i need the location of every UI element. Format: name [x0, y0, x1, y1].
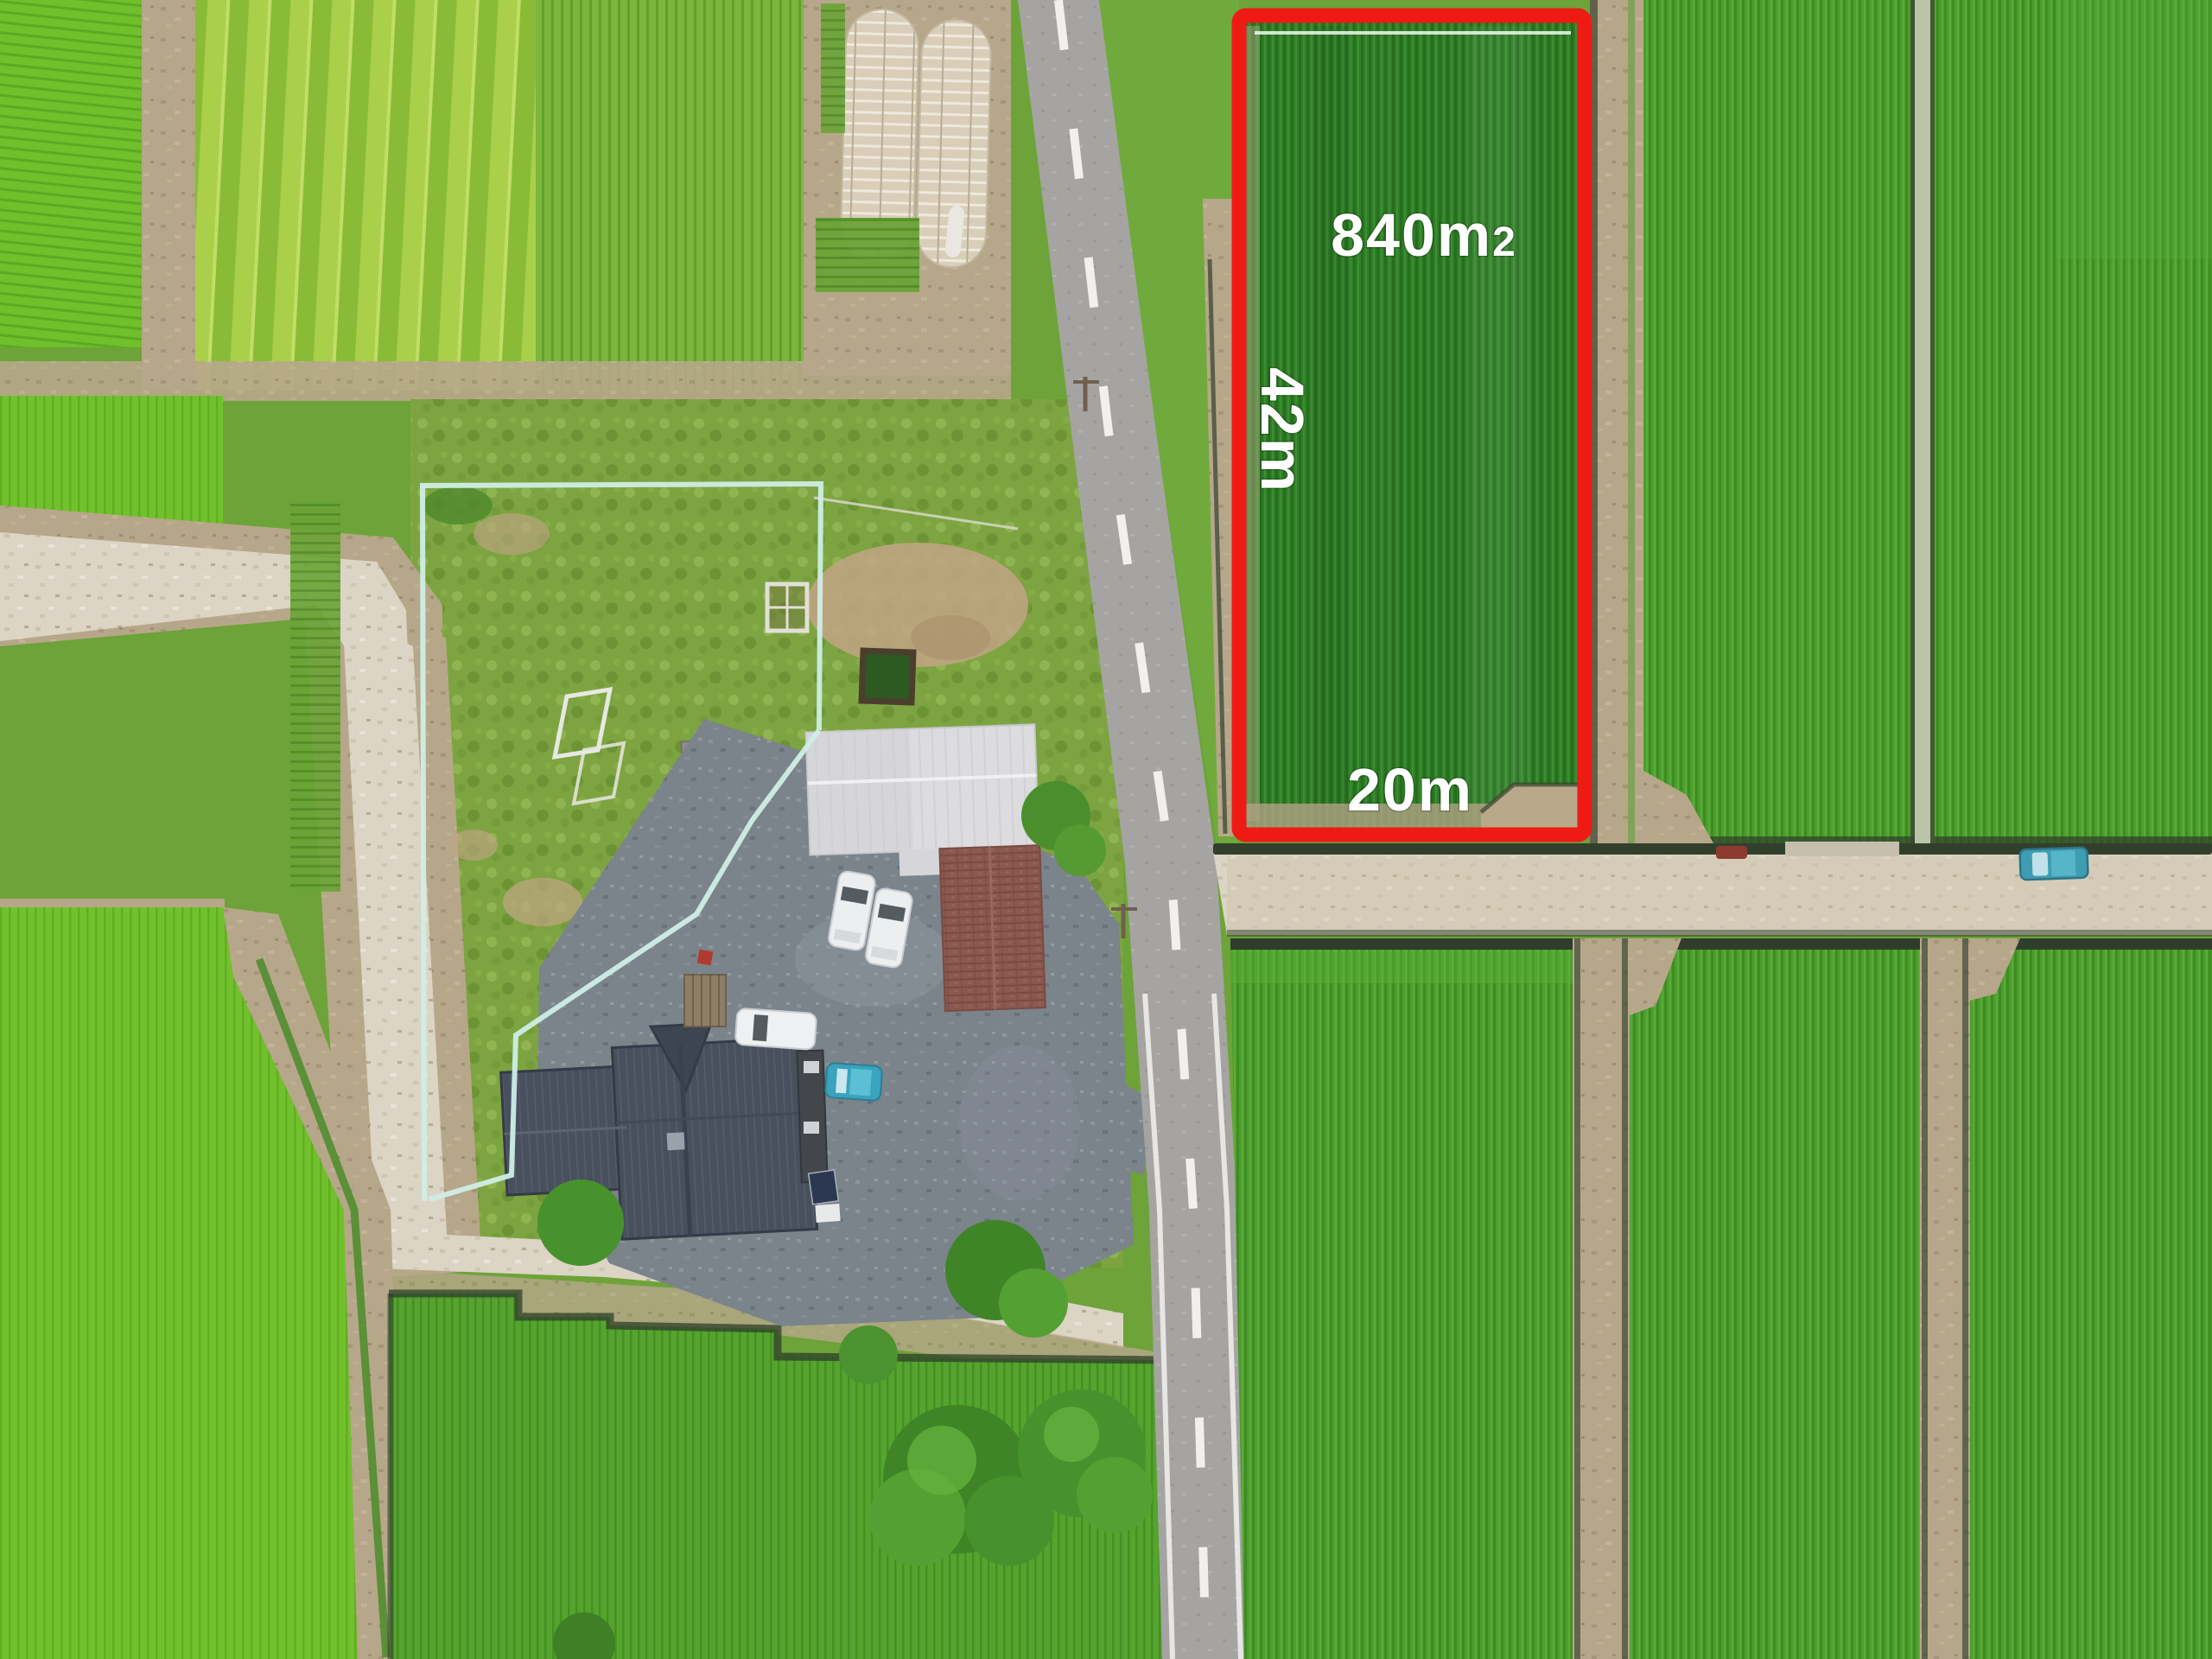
- concrete-channel-cover: [1785, 842, 1899, 856]
- wooden-planter: [767, 584, 807, 631]
- plot-light-band: [1469, 26, 1529, 825]
- paddy-field-topleft: [0, 0, 145, 347]
- striped-vegetable-field: [195, 0, 537, 391]
- field-se1-top-edge: [1230, 938, 1573, 950]
- tree-highlight: [907, 1426, 976, 1495]
- bush: [1054, 824, 1106, 876]
- red-object: [697, 950, 714, 966]
- dirt-patch: [503, 878, 582, 926]
- field-southeast-2: [1630, 947, 1920, 1659]
- white-car-3: [735, 1008, 817, 1050]
- teal-car: [825, 1063, 883, 1101]
- vegetable-rows-strip: [290, 501, 340, 892]
- field-southeast-3: [1970, 947, 2212, 1659]
- dirt-band-horizontal: [0, 361, 1011, 401]
- tree-canopy: [999, 1268, 1068, 1338]
- divider-channel: [1622, 938, 1628, 1659]
- barn-roof-shaded: [806, 728, 914, 855]
- area-value: 840m: [1331, 201, 1492, 269]
- plot-dark-band: [1313, 26, 1348, 825]
- divider-edge-left: [1910, 0, 1915, 851]
- dirt-strip-east-of-plot: [1590, 0, 1643, 851]
- field-southeast-1: [1230, 947, 1573, 1659]
- garden-frame-dark: [861, 651, 913, 702]
- frontage-label: 20m: [1347, 756, 1473, 823]
- trailer-white-box: [804, 1122, 819, 1134]
- crop-row-column: [821, 3, 845, 133]
- divider-channel: [1962, 938, 1968, 1659]
- roof-vent: [667, 1132, 685, 1150]
- side-length-label: 42m: [1249, 367, 1316, 493]
- dirt-patch: [911, 615, 990, 660]
- area-label: 840m2: [1331, 201, 1517, 269]
- field-se1-light-band: [1230, 950, 1573, 983]
- crop-rows-on-soil: [816, 218, 919, 292]
- dirt-divider-south-1: [1573, 938, 1630, 1659]
- dirt-path-topleft: [142, 0, 197, 391]
- sale-plot: 840m2 42m 20m: [1239, 16, 1585, 835]
- field-northeast-1: [1643, 0, 1915, 851]
- paddy-strip-left: [0, 396, 223, 524]
- divider-channel: [1922, 938, 1928, 1659]
- solar-panel: [809, 1170, 839, 1205]
- area-exponent: 2: [1492, 219, 1517, 265]
- blue-vehicle: [2019, 848, 2088, 880]
- barn-white-strip: [899, 849, 941, 876]
- bush-row: [423, 486, 493, 524]
- driveway-light-patch: [959, 1046, 1080, 1201]
- dirt-patch: [474, 513, 550, 555]
- drainage-channel-bottom: [1227, 930, 2212, 937]
- dirt-patch: [449, 829, 498, 861]
- tree-highlight: [1044, 1407, 1099, 1462]
- irrigation-channel-divider: [1915, 0, 1930, 851]
- divider-edge-right: [1930, 0, 1935, 851]
- aerial-photo-page: 840m2 42m 20m: [0, 0, 2212, 1659]
- divider-channel: [1574, 938, 1580, 1659]
- tree-canopy: [1077, 1457, 1153, 1533]
- trailer-white-box: [804, 1061, 819, 1073]
- strip-grass-line: [1628, 0, 1635, 851]
- field-ne2-light-patch: [2056, 0, 2212, 259]
- green-vegetable-field: [536, 0, 805, 391]
- bush: [839, 1325, 898, 1384]
- house-roof-main: [612, 1038, 817, 1240]
- tree-canopy: [537, 1179, 624, 1266]
- aerial-photo: 840m2 42m 20m: [0, 0, 2212, 1659]
- red-object-on-channel: [1716, 846, 1747, 859]
- white-utility-box: [815, 1204, 840, 1223]
